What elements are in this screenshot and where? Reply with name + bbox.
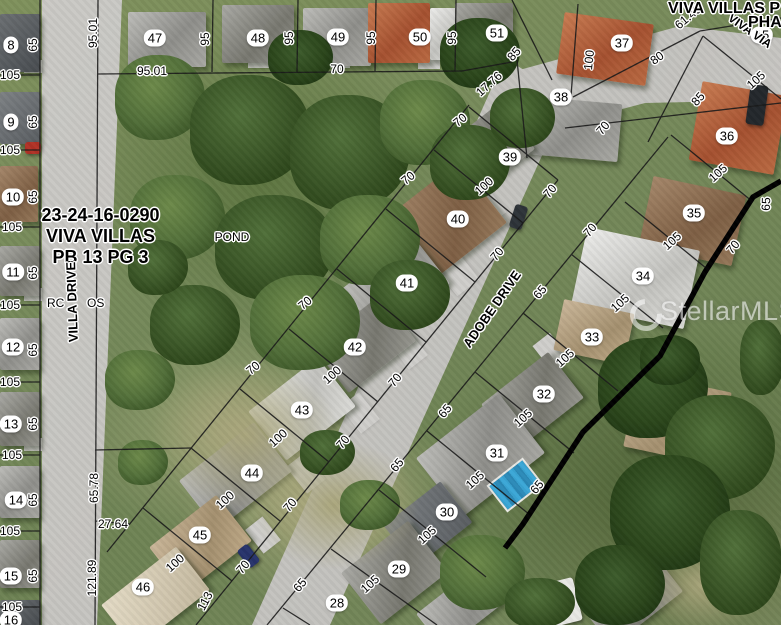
dimension-label: 105	[0, 375, 20, 389]
dimension-label: 70	[540, 181, 559, 200]
adjacent-plat-label-line2: PHA	[748, 14, 781, 32]
parcel-number-49: 49	[327, 29, 349, 46]
parcel-number-43: 43	[291, 402, 313, 419]
dimension-label: 65	[530, 282, 549, 301]
parcel-number-9: 9	[3, 114, 18, 131]
parcel-number-33: 33	[581, 329, 603, 346]
parcel-number-32: 32	[533, 386, 555, 403]
dimension-label: 65	[759, 197, 773, 211]
parcel-number-34: 34	[632, 268, 654, 285]
watermark: StellarMLS	[660, 296, 781, 327]
dimension-label: 105	[0, 68, 20, 82]
dimension-label: 65	[26, 190, 40, 203]
street-label-villa-drive: VILLA DRIVE	[63, 262, 81, 343]
dimension-label: 105	[2, 448, 22, 462]
dimension-label: 65	[26, 493, 40, 506]
dimension-label: 95	[282, 31, 296, 44]
parcel-number-31: 31	[486, 445, 508, 462]
parcel-number-39: 39	[499, 149, 521, 166]
dimension-label: 95	[198, 32, 212, 45]
pond-label: POND	[215, 230, 250, 244]
dimension-label: 95.01	[86, 18, 100, 48]
dimension-label: 65	[26, 38, 40, 51]
dimension-label: 95	[445, 31, 459, 44]
dimension-label: 65.78	[87, 473, 101, 503]
parcel-number-30: 30	[436, 504, 458, 521]
dimension-label: 27.64	[98, 517, 128, 531]
parcel-number-41: 41	[396, 275, 418, 292]
tree-canopy	[268, 30, 333, 85]
car	[25, 142, 41, 154]
tree-canopy	[118, 440, 168, 485]
dimension-label: 95	[364, 31, 378, 44]
tree-canopy	[700, 510, 781, 615]
parcel-number-44: 44	[241, 465, 263, 482]
tree-canopy	[150, 285, 240, 365]
dimension-label: 65	[26, 417, 40, 430]
parcel-number-50: 50	[409, 29, 431, 46]
dimension-label: 65	[26, 266, 40, 279]
tree-canopy	[740, 320, 781, 395]
parcel-number-16: 16	[0, 612, 22, 625]
house	[556, 12, 654, 86]
plat-id-line2: VIVA VILLAS	[18, 226, 183, 247]
dimension-label: 65	[26, 343, 40, 356]
parcel-number-51: 51	[486, 25, 508, 42]
parcel-number-35: 35	[683, 205, 705, 222]
row-fragment-os: OS	[87, 296, 104, 310]
parcel-number-45: 45	[189, 527, 211, 544]
dimension-label: 105	[0, 524, 20, 538]
parcel-number-8: 8	[3, 37, 18, 54]
plat-id-line3: PB 13 PG 3	[18, 247, 183, 268]
parcel-number-47: 47	[144, 30, 166, 47]
dimension-label: 70	[330, 62, 343, 76]
parcel-number-42: 42	[344, 339, 366, 356]
dimension-label: 105	[0, 143, 20, 157]
parcel-number-29: 29	[388, 561, 410, 578]
plat-id-line1: 23-24-16-0290	[18, 205, 183, 226]
parcel-number-37: 37	[611, 35, 633, 52]
parcel-number-14: 14	[5, 492, 27, 509]
dimension-label: 100	[581, 49, 597, 70]
tree-canopy	[505, 578, 575, 625]
parcel-number-28: 28	[326, 595, 348, 612]
parcel-number-48: 48	[247, 30, 269, 47]
parcel-number-38: 38	[550, 89, 572, 106]
parcel-number-10: 10	[2, 189, 24, 206]
parcel-number-15: 15	[0, 568, 22, 585]
plat-aerial-map: 8910111213141516474849505137381536393540…	[0, 0, 781, 625]
parcel-number-46: 46	[132, 579, 154, 596]
dimension-label: 65	[26, 115, 40, 128]
dimension-label: 65	[26, 569, 40, 582]
dimension-label: 105	[0, 298, 20, 312]
dimension-label: 95.01	[137, 64, 167, 78]
parcel-number-40: 40	[447, 211, 469, 228]
parcel-number-12: 12	[2, 339, 24, 356]
parcel-number-13: 13	[0, 416, 22, 433]
row-fragment-rc: RC	[47, 296, 64, 310]
dimension-label: 121.89	[85, 560, 99, 597]
dimension-label: 65	[435, 401, 454, 420]
plat-id-label: 23-24-16-0290 VIVA VILLAS PB 13 PG 3	[18, 205, 183, 268]
parcel-number-36: 36	[716, 128, 738, 145]
